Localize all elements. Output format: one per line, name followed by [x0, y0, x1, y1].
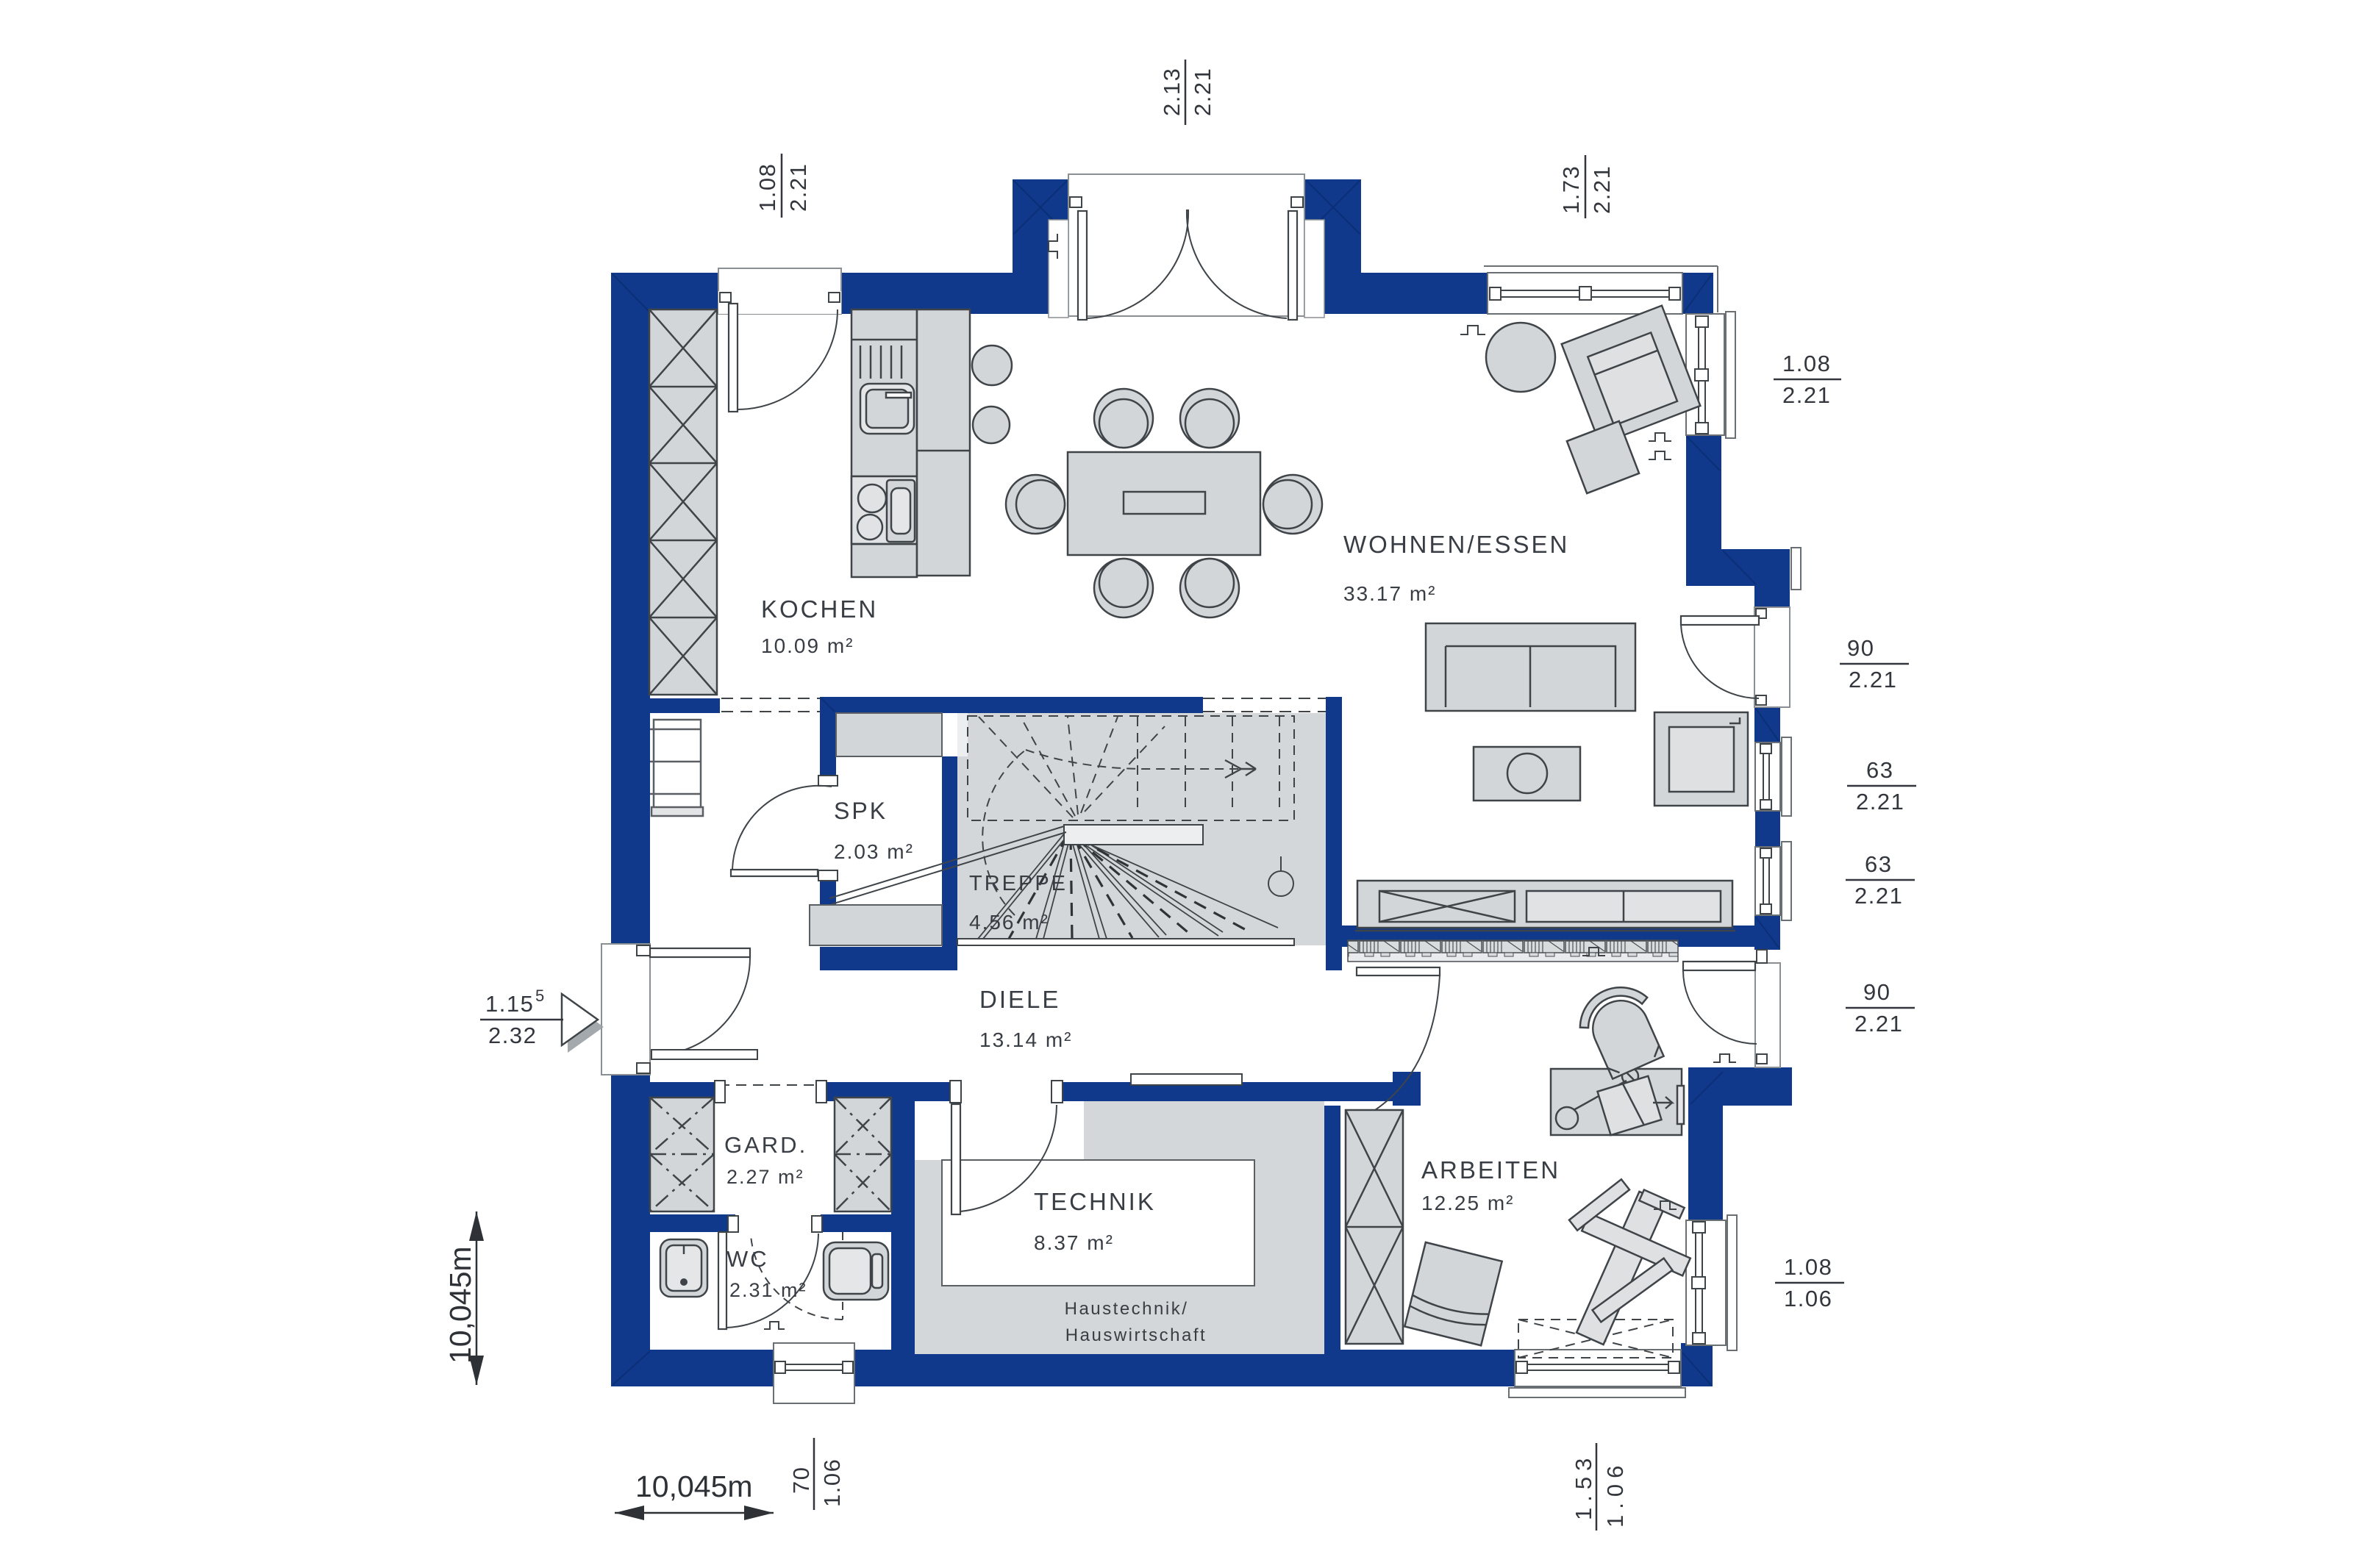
svg-text:2.31 m²: 2.31 m² — [729, 1279, 807, 1301]
svg-text:2.32: 2.32 — [488, 1023, 537, 1048]
svg-text:1.06: 1.06 — [1602, 1460, 1628, 1528]
svg-text:1.08: 1.08 — [1782, 351, 1831, 376]
svg-text:1.06: 1.06 — [819, 1458, 845, 1507]
svg-text:4.56 m²: 4.56 m² — [969, 911, 1049, 934]
svg-text:WOHNEN/ESSEN: WOHNEN/ESSEN — [1343, 531, 1569, 558]
svg-text:8.37 m²: 8.37 m² — [1034, 1231, 1114, 1254]
svg-text:1.73: 1.73 — [1558, 165, 1584, 214]
svg-text:TREPPE: TREPPE — [969, 872, 1068, 895]
svg-text:2.13: 2.13 — [1159, 68, 1185, 116]
svg-text:63: 63 — [1865, 851, 1892, 877]
svg-text:13.14 m²: 13.14 m² — [979, 1028, 1073, 1051]
svg-text:2.21: 2.21 — [1849, 667, 1897, 692]
svg-text:KOCHEN: KOCHEN — [761, 595, 878, 623]
svg-text:63: 63 — [1866, 757, 1893, 783]
svg-text:2.21: 2.21 — [1589, 165, 1615, 214]
svg-text:2.21: 2.21 — [1854, 1011, 1903, 1037]
svg-text:2.21: 2.21 — [1854, 883, 1903, 909]
svg-text:TECHNIK: TECHNIK — [1034, 1188, 1156, 1215]
svg-text:SPK: SPK — [834, 798, 888, 824]
svg-text:12.25 m²: 12.25 m² — [1421, 1192, 1515, 1214]
svg-text:ARBEITEN: ARBEITEN — [1421, 1156, 1560, 1184]
svg-text:10,045m: 10,045m — [443, 1246, 477, 1364]
svg-text:90: 90 — [1847, 635, 1874, 661]
svg-text:2.03 m²: 2.03 m² — [834, 840, 914, 863]
svg-text:WC: WC — [726, 1246, 769, 1272]
svg-text:2.21: 2.21 — [1782, 382, 1831, 408]
svg-text:1.15: 1.15 — [485, 991, 534, 1017]
svg-text:2.27 m²: 2.27 m² — [726, 1166, 804, 1188]
svg-text:Hauswirtschaft: Hauswirtschaft — [1065, 1325, 1207, 1345]
svg-text:5: 5 — [535, 987, 546, 1005]
svg-text:90: 90 — [1863, 979, 1890, 1005]
svg-text:2.21: 2.21 — [1856, 789, 1904, 815]
svg-text:70: 70 — [788, 1467, 814, 1494]
svg-text:GARD.: GARD. — [724, 1132, 807, 1158]
svg-text:10,045m: 10,045m — [635, 1469, 753, 1503]
svg-text:1.53: 1.53 — [1571, 1453, 1596, 1520]
svg-text:DIELE: DIELE — [979, 986, 1060, 1013]
svg-text:1.06: 1.06 — [1784, 1286, 1832, 1311]
svg-text:1.08: 1.08 — [754, 163, 780, 212]
svg-text:10.09 m²: 10.09 m² — [761, 634, 854, 657]
svg-text:33.17 m²: 33.17 m² — [1343, 582, 1437, 605]
svg-text:1.08: 1.08 — [1784, 1254, 1832, 1280]
svg-text:2.21: 2.21 — [1190, 68, 1215, 116]
svg-text:Haustechnik/: Haustechnik/ — [1065, 1299, 1189, 1319]
svg-text:2.21: 2.21 — [785, 163, 811, 212]
